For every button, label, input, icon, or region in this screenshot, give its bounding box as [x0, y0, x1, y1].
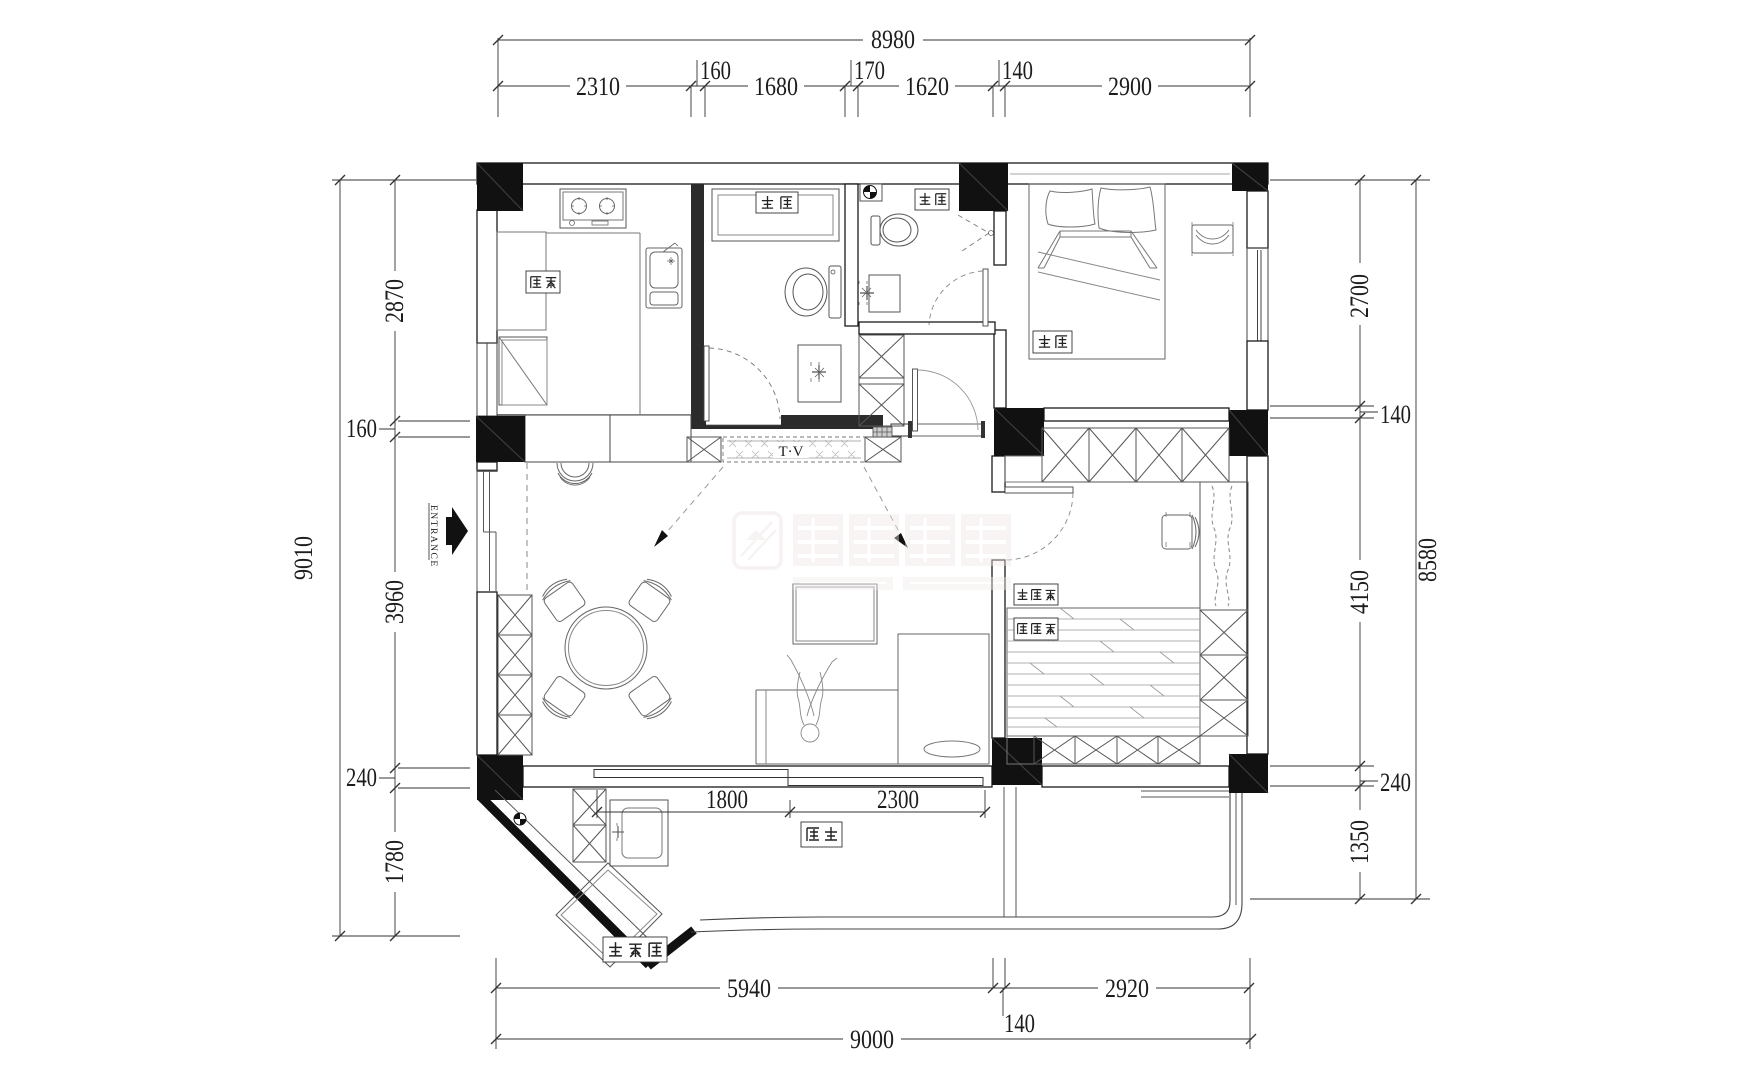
svg-text:1800: 1800	[706, 785, 748, 814]
svg-text:1620: 1620	[905, 72, 949, 101]
svg-text:160: 160	[346, 414, 377, 443]
svg-text:8580: 8580	[1413, 538, 1442, 582]
svg-text:140: 140	[1002, 56, 1033, 85]
svg-text:1680: 1680	[754, 72, 798, 101]
svg-text:9010: 9010	[289, 536, 318, 580]
svg-text:160: 160	[700, 56, 731, 85]
svg-text:240: 240	[346, 763, 377, 792]
svg-text:2700: 2700	[1345, 274, 1374, 318]
svg-text:ENTRANCE: ENTRANCE	[428, 505, 438, 568]
svg-text:240: 240	[1380, 768, 1411, 797]
svg-text:2310: 2310	[576, 72, 620, 101]
svg-text:1780: 1780	[380, 840, 409, 884]
svg-text:140: 140	[1004, 1009, 1035, 1038]
svg-text:8980: 8980	[871, 25, 915, 54]
svg-text:T·V: T·V	[779, 444, 804, 460]
svg-text:140: 140	[1380, 400, 1411, 429]
svg-text:4150: 4150	[1345, 570, 1374, 614]
svg-text:5940: 5940	[727, 974, 771, 1003]
svg-text:1350: 1350	[1345, 820, 1374, 864]
svg-text:2300: 2300	[877, 785, 919, 814]
svg-text:170: 170	[854, 56, 885, 85]
svg-text:2920: 2920	[1105, 974, 1149, 1003]
svg-text:9000: 9000	[850, 1025, 894, 1054]
svg-text:2900: 2900	[1108, 72, 1152, 101]
svg-text:2870: 2870	[380, 279, 409, 323]
svg-text:3960: 3960	[380, 580, 409, 624]
